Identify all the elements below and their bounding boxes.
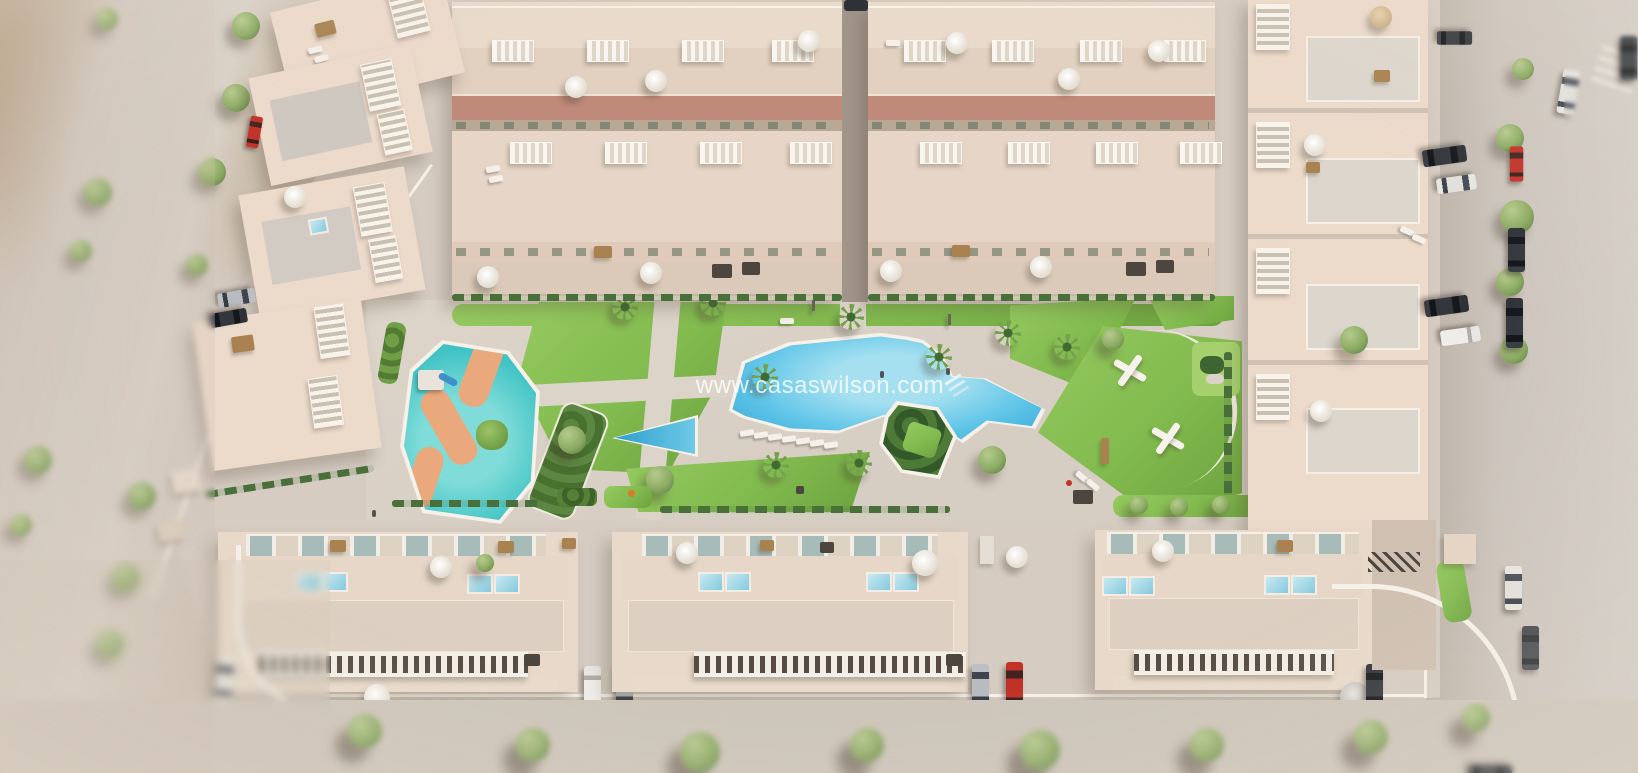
garden-hedge: [660, 506, 950, 513]
patio-set: [498, 541, 514, 553]
perimeter-wall: [228, 694, 1426, 697]
roof-plunge-pool: [1291, 575, 1317, 595]
garden-bench-x: [1112, 352, 1148, 388]
street-tree: [96, 630, 124, 658]
lawn-sunbed: [780, 318, 794, 324]
outdoor-kitchen: [712, 264, 732, 278]
roof-tile-band: [452, 94, 842, 122]
windows: [456, 122, 834, 129]
carport-louvre: [1134, 650, 1334, 675]
ground-front: [632, 678, 948, 690]
mini-playground-lawn: [604, 486, 652, 508]
sidewalk-tree: [850, 728, 884, 762]
kerb-tree: [1512, 58, 1534, 80]
street-tree: [112, 564, 140, 592]
house-divider: [1248, 108, 1428, 113]
play-item-red: [1066, 480, 1072, 486]
patio-table: [594, 246, 612, 258]
parked-car-white: [1505, 566, 1522, 610]
kerb-tree: [1496, 268, 1524, 296]
palm-tree: [763, 452, 789, 478]
island-lawn-patch: [901, 420, 943, 459]
roof-plunge-pool: [725, 572, 751, 592]
garage-door: [946, 654, 962, 666]
ground-front: [1113, 676, 1353, 688]
pedestrian: [372, 510, 376, 517]
backyard-umbrella: [477, 266, 499, 288]
garden-bench-x: [1150, 420, 1186, 456]
roof-plunge-pool: [494, 574, 520, 594]
roof-plunge-pool: [698, 572, 724, 592]
rooftop-pergola: [1164, 40, 1206, 62]
watermark: www.casaswilson.com: [600, 372, 1040, 400]
carport-louvre: [694, 652, 966, 677]
roof-slab: [1109, 598, 1359, 650]
street-tree: [84, 178, 112, 206]
roof-plunge-pool: [1129, 576, 1155, 596]
patio-set: [1277, 540, 1293, 552]
street-tree: [96, 8, 118, 30]
garage-door: [524, 654, 540, 666]
splash-island: [476, 420, 508, 450]
bike-racks: [1368, 552, 1420, 572]
rooftop-pergola: [1080, 40, 1122, 62]
roof-terrace: [1306, 158, 1420, 224]
splash-sand-path: [455, 344, 508, 411]
terrace-umbrella: [946, 32, 968, 54]
backyard-umbrella: [640, 262, 662, 284]
parked-car-dark: [1620, 36, 1637, 80]
terrace-umbrella: [676, 542, 698, 564]
play-structure: [1200, 356, 1224, 374]
parked-car-red: [1510, 146, 1524, 181]
rooftop-pergola: [1180, 142, 1222, 164]
rooftop-pergola: [492, 40, 534, 62]
garden-storage-door: [1073, 490, 1093, 504]
backyard-umbrella: [1030, 256, 1052, 278]
pergola-slats: [1256, 4, 1290, 50]
rooftop-pergola: [605, 142, 647, 164]
rooftop-pergola: [510, 142, 552, 164]
palm-tree: [1054, 334, 1080, 360]
garden-bench: [1101, 438, 1109, 464]
parked-car-dark: [1522, 626, 1539, 670]
roof-sunbed: [308, 45, 323, 54]
rooftop-pergola: [790, 142, 832, 164]
street-tree: [24, 446, 52, 474]
roof-plunge-pool: [866, 572, 892, 592]
roof-sunbed: [886, 40, 900, 46]
windows: [872, 122, 1209, 129]
planter-bed: [557, 488, 597, 506]
street-tree: [70, 240, 92, 262]
rooftop-pergola: [920, 142, 962, 164]
roof-tile-band: [868, 94, 1215, 122]
street-lamp: [812, 300, 815, 311]
house-divider: [1248, 234, 1428, 239]
patio-table: [1374, 70, 1390, 82]
south-sidewalk: [0, 700, 1638, 773]
patio-set: [760, 540, 774, 551]
terrace-umbrella: [1310, 400, 1332, 422]
street-tree: [128, 482, 156, 510]
outdoor-kitchen: [1126, 262, 1146, 276]
rooftop-pergola: [992, 40, 1034, 62]
terrace-umbrella: [284, 186, 306, 208]
skylight-band: [1107, 532, 1359, 556]
gate-structure: [1444, 534, 1476, 564]
street-tree: [186, 254, 208, 276]
garden-tree: [978, 446, 1006, 474]
patio-set: [562, 538, 576, 549]
pergola-slats: [353, 182, 393, 237]
terrace-umbrella: [645, 70, 667, 92]
street-tree: [232, 12, 260, 40]
palm-tree: [995, 320, 1021, 346]
planter-bush: [1170, 498, 1188, 516]
street-tree: [10, 514, 32, 536]
roof-table: [231, 334, 255, 353]
street-lamp: [948, 314, 951, 325]
garden-tree: [558, 426, 586, 454]
sidewalk-tree: [1190, 728, 1224, 762]
pergola-slats: [1256, 122, 1290, 168]
utility-box: [980, 536, 994, 564]
terrace-umbrella: [1148, 40, 1170, 62]
sidewalk-tree: [1020, 730, 1060, 770]
palm-tree: [838, 304, 864, 330]
rooftop-pergola: [587, 40, 629, 62]
rooftop-pergola: [682, 40, 724, 62]
roof-table: [314, 20, 337, 38]
entry-umbrella: [1006, 546, 1028, 568]
villa-column-east: [1248, 0, 1428, 536]
rooftop-pergola: [700, 142, 742, 164]
parked-car-dark: [1437, 31, 1472, 45]
rooftop-pergola: [904, 40, 946, 62]
pergola-slats: [1256, 248, 1290, 294]
house-divider: [1248, 360, 1428, 365]
windows: [872, 248, 1209, 256]
palm-tree: [926, 344, 952, 370]
terrace-umbrella: [1058, 68, 1080, 90]
terrace-umbrella: [798, 30, 820, 52]
parked-car-dark: [1469, 766, 1513, 773]
inner-lane: [842, 0, 868, 302]
roof-plunge-pool: [467, 574, 493, 594]
sidewalk-tree: [1462, 704, 1490, 732]
terrace-umbrella: [1370, 6, 1392, 28]
roof-plunge-pool: [1102, 576, 1128, 596]
roof-slab: [628, 600, 954, 652]
waste-bin: [796, 486, 804, 494]
sidewalk-tree: [348, 714, 382, 748]
palm-tree: [846, 450, 872, 476]
roof-plunge-pool: [893, 572, 919, 592]
backyard-hedge: [868, 294, 1215, 301]
rooftop-pergola: [1008, 142, 1050, 164]
parked-car-dark: [844, 0, 868, 11]
pergola-slats: [313, 303, 350, 359]
pergola-slats: [377, 109, 413, 156]
roof-terrace: [269, 81, 372, 161]
roof-plunge-pool: [1264, 575, 1290, 595]
courtyard-tree: [1340, 326, 1368, 354]
garden-tree: [1102, 328, 1124, 350]
outdoor-kitchen: [1156, 260, 1174, 273]
street-tree: [222, 84, 250, 112]
rooftop-pergola: [1096, 142, 1138, 164]
roof-terrace: [1306, 36, 1420, 102]
outdoor-kitchen: [742, 262, 760, 275]
garden-hedge: [1224, 352, 1232, 512]
pergola-slats: [360, 58, 401, 112]
parked-van-dark: [1506, 298, 1523, 348]
pergola-slats: [307, 375, 344, 429]
patio-chairs: [820, 542, 834, 553]
terrace-umbrella: [912, 550, 938, 576]
terraced-row-north-west: [452, 2, 842, 300]
pergola-slats: [368, 235, 403, 283]
parked-car-dark: [1508, 228, 1525, 272]
terrace-umbrella: [565, 76, 587, 98]
planter-bush: [1212, 496, 1230, 514]
pergola-slats: [386, 0, 431, 39]
splash-pool-water: [404, 344, 536, 520]
garden-hedge: [392, 500, 542, 507]
sidewalk-tree: [1354, 720, 1388, 754]
aerial-development-render: www.casaswilson.com: [0, 0, 1638, 773]
sidewalk-tree: [516, 728, 550, 762]
terrace-umbrella: [1152, 540, 1174, 562]
terrace-planter: [476, 554, 494, 572]
terrace-umbrella: [1304, 134, 1326, 156]
sidewalk-tree: [680, 732, 720, 772]
terrace-umbrella: [430, 556, 452, 578]
playground-item-orange: [628, 490, 635, 497]
backyard-umbrella: [880, 260, 902, 282]
street-tree: [198, 158, 226, 186]
pergola-slats: [1256, 374, 1290, 420]
patio-table: [952, 245, 970, 257]
planter-bush: [1130, 496, 1148, 514]
roof-plunge-pool: [308, 217, 329, 236]
patio-table: [1306, 162, 1320, 173]
play-sand-patch: [1206, 374, 1224, 384]
windows: [456, 248, 834, 256]
backyard-hedge: [452, 294, 842, 301]
